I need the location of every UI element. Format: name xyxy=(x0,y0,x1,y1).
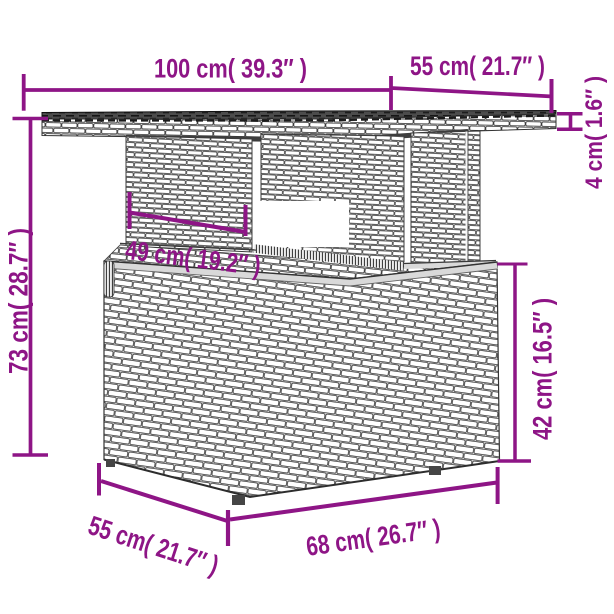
svg-text:100 cm( 39.3″ ): 100 cm( 39.3″ ) xyxy=(154,54,307,84)
svg-text:4 cm( 1.6″ ): 4 cm( 1.6″ ) xyxy=(581,76,608,189)
svg-text:55 cm( 21.7″ ): 55 cm( 21.7″ ) xyxy=(410,51,545,81)
svg-text:42 cm( 16.5″ ): 42 cm( 16.5″ ) xyxy=(528,298,558,440)
svg-text:73 cm( 28.7″ ): 73 cm( 28.7″ ) xyxy=(4,228,34,374)
